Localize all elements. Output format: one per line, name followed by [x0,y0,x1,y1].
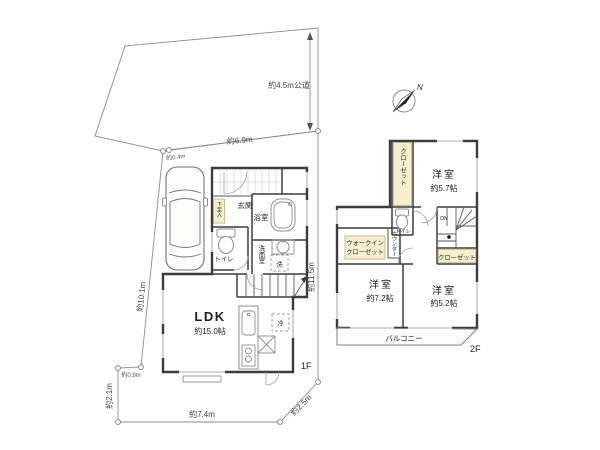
lot-dim-lower-left: 約2.1m [104,383,114,409]
washroom-label: 洗面室 [258,244,265,265]
ldk-size-label: 約15.0帖 [194,326,226,336]
floorplan-page: 約4.5m公道 約6.9m 約0.4m 約10.1m 約0.9m 約2.1m 約… [0,0,600,450]
closet-top-label: クローゼット [399,148,406,186]
lot-dim-bottom-jog: 約0.9m [121,371,140,379]
bedroom3-size: 約5.2帖 [430,298,457,308]
washbasin [272,239,294,254]
bedroom1-label: 洋室 [432,168,456,181]
closet-b-label: クローゼット [438,253,476,262]
lot-dim-top-jog: 約0.4m [166,152,186,162]
back-door-swing [266,372,279,385]
toilet1-label: トイレ [215,256,234,263]
kitchen-counter [239,306,258,369]
lot-dim-top: 約6.9m [226,134,253,147]
ldk-label: LDK [194,309,225,324]
stairs-2f [437,207,477,248]
floorplan-drawing: 約4.5m公道 約6.9m 約0.4m 約10.1m 約0.9m 約2.1m 約… [0,0,600,450]
ldk-door-swing [247,274,263,290]
entrance-porch [214,170,282,195]
car-icon [163,167,208,270]
lot-dim-bottom: 約7.4m [189,409,215,419]
stairs-dn-label: DN [440,216,448,222]
walkin-closet-label-1: ウォークイン [346,239,384,247]
balcony-label: バルコニー [385,334,422,343]
floor2-tag: 2F [470,344,481,354]
road-width-label: 約4.5m公道 [268,80,310,90]
arrow-down-icon [307,123,313,131]
bedroom3-label: 洋室 [432,284,456,297]
floor2-plan: バルコニー クローゼット 洋室 約5.7帖 [335,139,481,354]
shoe-cabinet-label: 下足入 [216,201,222,217]
toilet-door-swing [234,256,248,270]
bedroom2-size: 約7.2帖 [366,293,393,303]
toilet-fixture [217,229,248,270]
fridge-label: 冷 [277,319,284,328]
compass-north-label: N [417,83,423,92]
counter-label: カウンター [391,230,397,256]
compass-icon: N [393,83,423,112]
bedroom2-label: 洋室 [369,278,393,291]
arrow-up-icon [307,32,313,40]
washer-label: 洗 [276,260,283,269]
floor-storage-hatch [258,336,275,353]
bathtub [271,199,295,231]
terrace-step [183,376,221,382]
walkin-closet-label-2: クローゼット [346,247,384,256]
toilet2-fixture [396,209,409,229]
lot-dim-bottom-right: 約2.5m [288,392,313,418]
toilet2-label: トイレ [395,229,411,235]
entrance-label: 玄関 [238,200,253,210]
road-area: 約4.5m公道 [95,28,318,151]
toilet2-door-swing [413,211,428,226]
stairs-1f [246,274,307,297]
floor1-tag: 1F [301,361,312,371]
bathroom-label: 浴室 [254,212,269,222]
bedroom1-size: 約5.7帖 [430,183,457,193]
lot-dim-left: 約10.1m [134,281,147,312]
